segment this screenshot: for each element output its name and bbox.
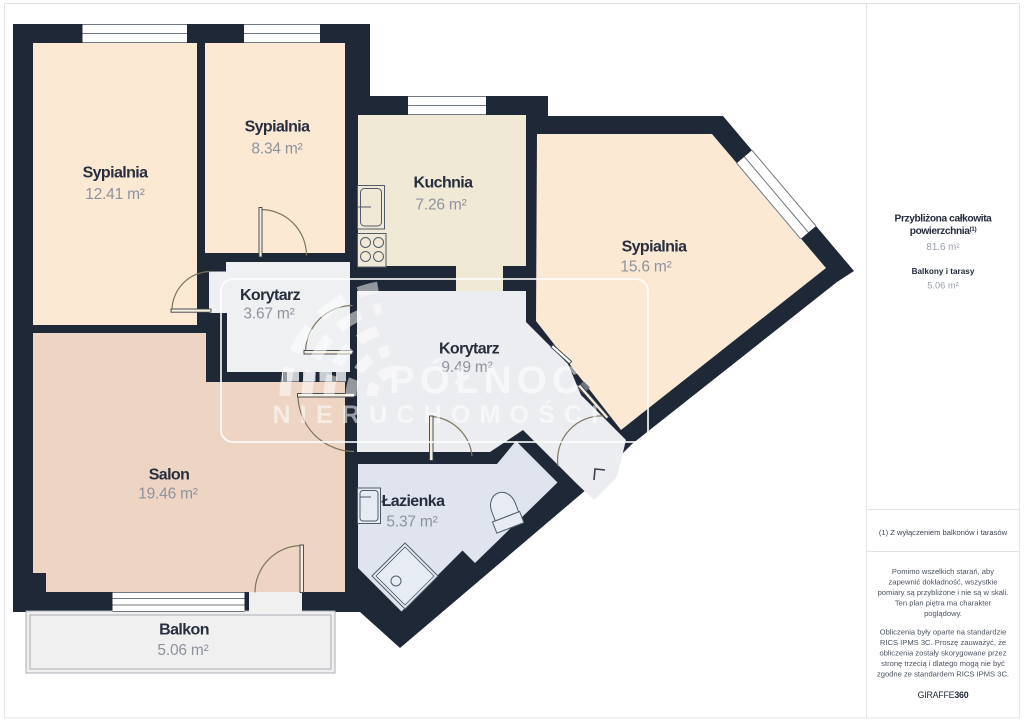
svg-text:Balkony i tarasy: Balkony i tarasy bbox=[912, 267, 975, 276]
svg-text:poglądowy.: poglądowy. bbox=[924, 609, 962, 618]
svg-text:NIERUCHOMOŚCI: NIERUCHOMOŚCI bbox=[273, 399, 608, 429]
svg-text:pomiary są przybliżone i nie s: pomiary są przybliżone i nie są w skali. bbox=[878, 588, 1009, 597]
svg-text:zgodne ze standardem RICS IPMS: zgodne ze standardem RICS IPMS 3C. bbox=[877, 670, 1009, 679]
svg-text:8.34 m²: 8.34 m² bbox=[251, 141, 302, 158]
svg-text:Korytarz: Korytarz bbox=[439, 341, 500, 358]
svg-text:zapewnić dokładność, wszystkie: zapewnić dokładność, wszystkie bbox=[889, 578, 998, 587]
svg-text:15.6 m²: 15.6 m² bbox=[620, 259, 671, 276]
svg-text:Sypialnia: Sypialnia bbox=[622, 239, 688, 256]
svg-text:Korytarz: Korytarz bbox=[240, 287, 301, 304]
svg-text:Sypialnia: Sypialnia bbox=[83, 165, 149, 182]
svg-text:Salon: Salon bbox=[149, 467, 190, 484]
svg-text:5.06 m²: 5.06 m² bbox=[927, 281, 959, 291]
svg-text:obliczenia zostały skorygowane: obliczenia zostały skorygowane przez bbox=[879, 649, 1006, 658]
svg-text:Balkon: Balkon bbox=[159, 622, 209, 639]
svg-text:81.6 m²: 81.6 m² bbox=[926, 242, 960, 253]
svg-text:19.46 m²: 19.46 m² bbox=[138, 486, 198, 503]
svg-text:12.41 m²: 12.41 m² bbox=[85, 186, 145, 203]
svg-text:5.37 m²: 5.37 m² bbox=[386, 514, 437, 531]
svg-text:Pomimo wszelkich starań, aby: Pomimo wszelkich starań, aby bbox=[892, 567, 994, 576]
svg-text:RICS IPMS 3C. Proszę zauważyć,: RICS IPMS 3C. Proszę zauważyć, że bbox=[880, 638, 1006, 647]
svg-text:Przybliżona całkowita: Przybliżona całkowita bbox=[895, 214, 993, 225]
svg-text:powierzchnia(1): powierzchnia(1) bbox=[910, 226, 977, 238]
svg-text:Łazienka: Łazienka bbox=[382, 493, 445, 510]
svg-text:3.67 m²: 3.67 m² bbox=[243, 306, 294, 323]
svg-text:5.06 m²: 5.06 m² bbox=[157, 642, 208, 659]
svg-text:(1) Z wyłączeniem balkonów i t: (1) Z wyłączeniem balkonów i tarasów bbox=[879, 528, 1008, 537]
svg-text:Sypialnia: Sypialnia bbox=[245, 119, 311, 136]
svg-text:Kuchnia: Kuchnia bbox=[414, 175, 474, 192]
svg-text:GIRAFFE360: GIRAFFE360 bbox=[918, 690, 969, 700]
svg-text:Obliczenia były oparte na stan: Obliczenia były oparte na standardzie bbox=[880, 628, 1007, 637]
svg-text:stronę trzecią i dlatego mogą: stronę trzecią i dlatego mogą nie być bbox=[881, 659, 1005, 668]
svg-text:PÓŁNOC: PÓŁNOC bbox=[389, 358, 585, 402]
svg-text:7.26 m²: 7.26 m² bbox=[415, 197, 466, 214]
svg-text:Ten plan piętra ma charakter: Ten plan piętra ma charakter bbox=[895, 599, 992, 608]
